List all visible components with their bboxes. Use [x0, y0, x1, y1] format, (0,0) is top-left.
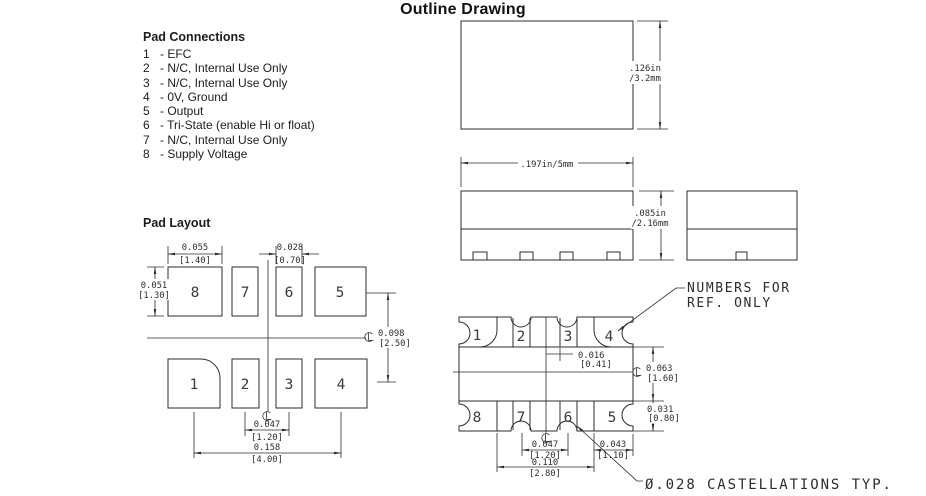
pad-label: 1 [473, 328, 482, 344]
dim-label: 0.055 [182, 243, 208, 253]
package-front-view: .197in/5mm .085in /2.16mm [461, 155, 674, 260]
pad-label: 4 [605, 329, 614, 345]
castellation-pad [736, 252, 747, 260]
pad-layout-figure: 0.055 [1.40] 0.028 [0.70] 0.051 [1.30] 0… [138, 243, 411, 465]
centerline-symbol [365, 332, 374, 341]
pad-label: 5 [336, 285, 345, 301]
dim-label-mm: [1.60] [647, 374, 679, 384]
callout-numbers-ref: REF. ONLY [687, 296, 772, 311]
dim-label: 0.110 [532, 458, 558, 468]
dim-label-mm: [0.70] [274, 256, 306, 266]
dim-label: 0.051 [141, 281, 167, 291]
dim-label: 0.043 [600, 440, 626, 450]
dim-label: 0.063 [646, 364, 672, 374]
dim-label: .085in [634, 209, 666, 219]
outline-drawing-page: Outline Drawing Pad Connections 1- EFC 2… [0, 0, 926, 496]
package-outline [687, 191, 797, 260]
dim-label-mm: [4.00] [251, 455, 283, 465]
pad-label: 3 [285, 377, 294, 393]
package-bottom-view: 0.016 [0.41] 0.063 [1.60] 0.031 [0.80] 0… [453, 281, 893, 493]
dim-label: .197in/5mm [521, 160, 574, 170]
dim-label-mm: [2.80] [529, 469, 561, 479]
dim-label-mm: [0.41] [580, 360, 612, 370]
dim-label-mm: [1.10] [597, 451, 629, 461]
pad-label: 7 [517, 410, 526, 426]
dim-label-mm: /2.16mm [631, 219, 668, 229]
package-outline [461, 21, 633, 129]
pad-label: 8 [191, 285, 200, 301]
callout-castellations: Ø.028 CASTELLATIONS TYP. [645, 477, 893, 493]
pad-1-boundary [480, 317, 497, 347]
dim-label: 0.028 [277, 243, 303, 253]
dim-label-mm: [1.20] [251, 433, 283, 443]
pad-label: 8 [473, 410, 482, 426]
dim-label: 0.047 [532, 440, 558, 450]
castellation-pad [607, 252, 620, 260]
pad-label: 2 [517, 329, 526, 345]
outline-drawing-canvas: 0.055 [1.40] 0.028 [0.70] 0.051 [1.30] 0… [0, 0, 926, 496]
package-outline [461, 191, 633, 260]
package-top-view: .126in /3.2mm [461, 21, 668, 129]
callout-numbers-ref: NUMBERS FOR [687, 281, 791, 296]
dim-label-mm: [1.40] [179, 256, 211, 266]
centerline-symbol [633, 367, 642, 376]
package-end-view [687, 191, 797, 260]
pad-label: 4 [337, 377, 346, 393]
dim-label-mm: [2.50] [379, 339, 411, 349]
castellation-pad [560, 252, 573, 260]
leader-line [618, 288, 685, 331]
dim-label-mm: [0.80] [648, 414, 680, 424]
dim-label: 0.158 [254, 443, 280, 453]
dim-label-mm: /3.2mm [629, 74, 661, 84]
pad-label: 5 [608, 410, 617, 426]
pad-label: 6 [564, 410, 573, 426]
pad-label: 3 [564, 329, 573, 345]
pad-label: 6 [285, 285, 294, 301]
dim-label: .126in [629, 64, 661, 74]
castellation-pad [520, 252, 533, 260]
dim-label: 0.098 [378, 329, 404, 339]
pad-label: 7 [241, 285, 250, 301]
pad-label: 2 [241, 377, 250, 393]
castellation-pad [473, 252, 487, 260]
dim-label-mm: [1.30] [138, 291, 170, 301]
dim-label: 0.047 [254, 420, 280, 430]
pad-label: 1 [190, 377, 199, 393]
